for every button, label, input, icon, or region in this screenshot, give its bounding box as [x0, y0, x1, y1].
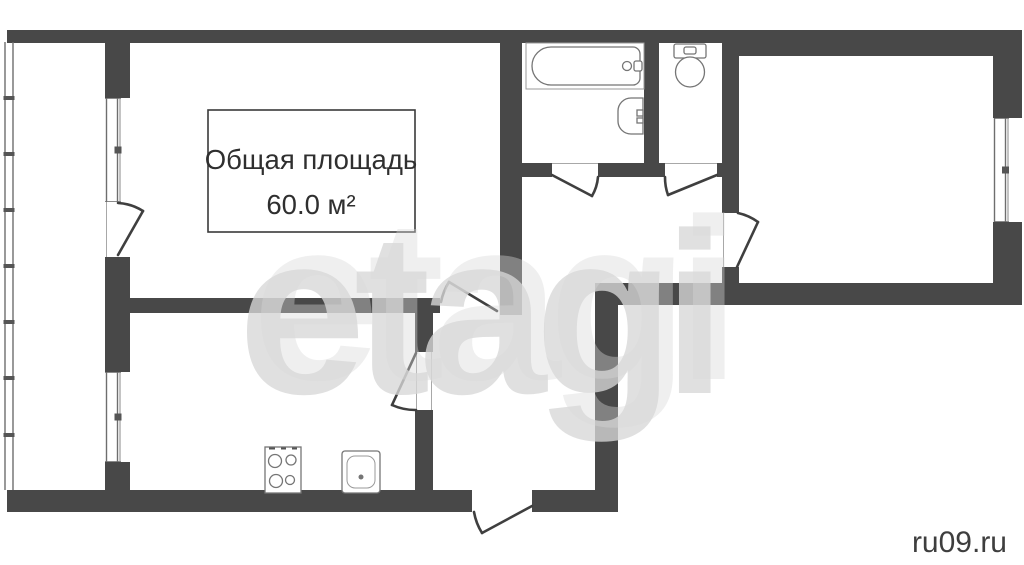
- wall-left-upper: [105, 42, 130, 98]
- watermark: etagi etagi: [238, 171, 729, 442]
- site-credit: ru09.ru: [912, 526, 1007, 559]
- entrance-door: [474, 506, 532, 533]
- balcony-door: [107, 202, 144, 257]
- kitchen-sink-icon: [342, 451, 380, 493]
- bathtub-icon: [526, 43, 644, 89]
- wall-top-east: [722, 30, 1022, 56]
- bedroom-window: [994, 118, 1009, 222]
- balcony-glazing: [4, 42, 15, 490]
- wall-top-west: [7, 30, 739, 43]
- wall-bath-toilet-divider: [644, 43, 659, 163]
- wash-basin-icon: [618, 98, 643, 134]
- stove-icon: [265, 447, 301, 493]
- floor-plan-drawing: Общая площадь 60.0 м² etagi etagi ru09.r…: [0, 0, 1024, 565]
- wall-left-middle: [105, 257, 130, 372]
- kitchen-window: [105, 372, 122, 462]
- wall-right-upper: [993, 30, 1022, 118]
- toilet-icon: [674, 44, 706, 87]
- wall-bottom-west: [7, 490, 472, 512]
- floor-plan-image: Общая площадь 60.0 м² etagi etagi ru09.r…: [0, 0, 1024, 565]
- watermark-text: etagi: [238, 185, 715, 442]
- wall-bottom-mid: [532, 490, 618, 512]
- living-room-window: [105, 98, 122, 202]
- wall-left-lower: [105, 462, 130, 490]
